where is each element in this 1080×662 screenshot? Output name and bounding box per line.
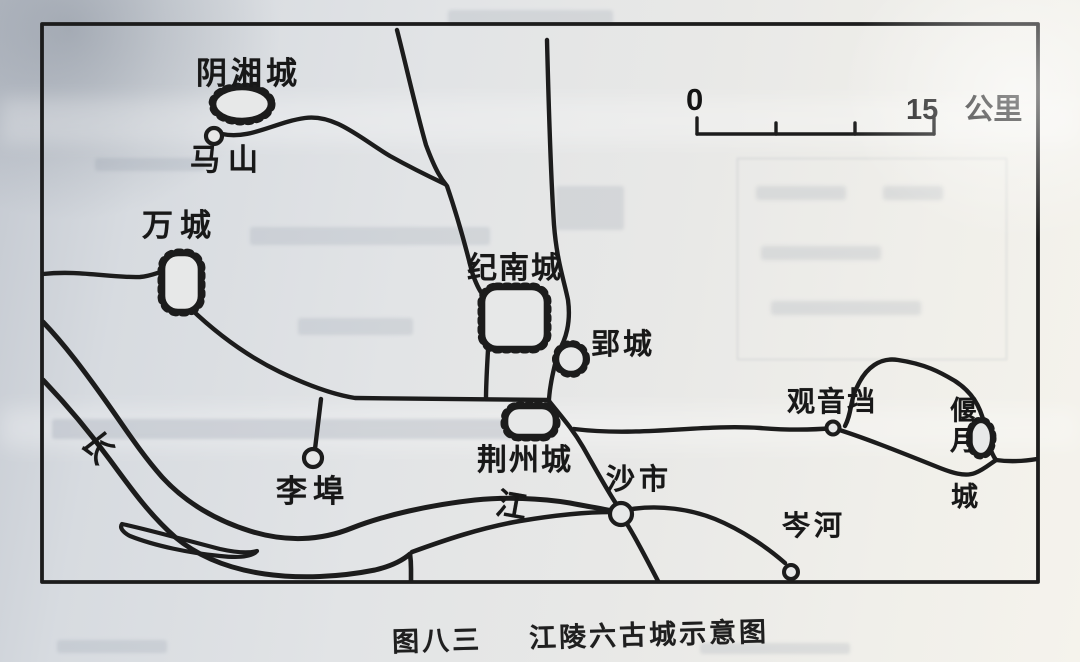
city-symbol-yingcheng xyxy=(557,345,585,373)
marker-lipu xyxy=(304,449,322,467)
marker-guanyindang xyxy=(827,422,840,435)
road-to-guanyindang xyxy=(574,427,833,431)
label-shashi: 沙市 xyxy=(606,466,672,495)
river-loop-to-border xyxy=(996,459,1037,461)
road-jinancheng-west-south xyxy=(486,350,488,399)
city-symbol-jinancheng xyxy=(483,288,546,348)
scale-zero-label: 0 xyxy=(686,82,703,118)
yangtze-south-bank xyxy=(43,380,410,577)
label-lipu: 李埠 xyxy=(276,476,350,507)
road-wancheng-west xyxy=(43,270,168,277)
label-yanyuecheng-bottom: 城 xyxy=(948,482,975,509)
label-yingcheng: 郢城 xyxy=(591,331,655,360)
marker-cenhe xyxy=(784,565,798,579)
yangtze-channel-split xyxy=(410,554,411,581)
marker-mashan xyxy=(206,128,222,144)
label-cenhe: 岑河 xyxy=(782,512,846,540)
label-yinxiangcheng: 阴湘城 xyxy=(196,58,301,89)
label-yanyuecheng-top: 偃月 xyxy=(947,396,974,456)
road-shashi-to-cenhe xyxy=(632,507,785,563)
road-shashi-southeast xyxy=(627,524,658,581)
label-jinancheng: 纪南城 xyxy=(467,254,563,284)
label-jingzhoucheng: 荆州城 xyxy=(477,446,573,476)
label-mashan: 马山 xyxy=(190,146,266,176)
city-symbol-jingzhoucheng xyxy=(506,407,555,436)
label-wancheng: 万城 xyxy=(142,210,218,241)
scale-distance-number: 15 xyxy=(906,94,938,126)
figure-title: 江陵六古城示意图 xyxy=(529,617,770,654)
scale-distance-label: 15 公里 xyxy=(906,86,1022,128)
figure-number: 图八三 xyxy=(392,625,483,658)
scale-bar xyxy=(697,118,934,134)
label-guanyindang: 观音垱 xyxy=(787,388,877,416)
road-lipu-spur xyxy=(315,399,321,449)
scale-unit-label: 公里 xyxy=(964,94,1022,126)
label-river-jiang: 江 xyxy=(494,488,530,524)
city-symbol-wancheng xyxy=(163,254,200,311)
marker-shashi xyxy=(610,503,632,525)
city-symbol-yinxiangcheng xyxy=(214,88,270,120)
scanned-book-page: 阴湘城 马山 万城 纪南城 郢城 荆州城 李埠 沙市 观音垱 岑河 偃月 城 长… xyxy=(0,0,1080,662)
